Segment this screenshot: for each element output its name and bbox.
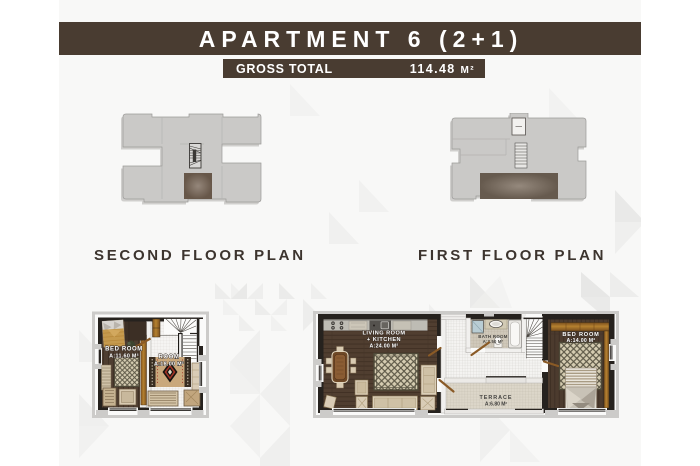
svg-text:BED ROOM: BED ROOM [105,347,143,353]
svg-text:TERRACE: TERRACE [479,395,512,401]
svg-text:A:24.00 M²: A:24.00 M² [370,344,399,350]
svg-text:ROOM: ROOM [158,355,179,361]
svg-text:A:14.00 M²: A:14.00 M² [567,338,596,344]
svg-text:A:6.80 M²: A:6.80 M² [485,402,508,408]
svg-text:LIVING ROOM: LIVING ROOM [362,331,405,337]
svg-text:A:3.50 M²: A:3.50 M² [483,339,504,344]
svg-text:A:11.60 M²: A:11.60 M² [109,354,139,360]
svg-text:+ KITCHEN: + KITCHEN [367,337,401,343]
svg-text:A:18.00 M²: A:18.00 M² [154,362,184,368]
